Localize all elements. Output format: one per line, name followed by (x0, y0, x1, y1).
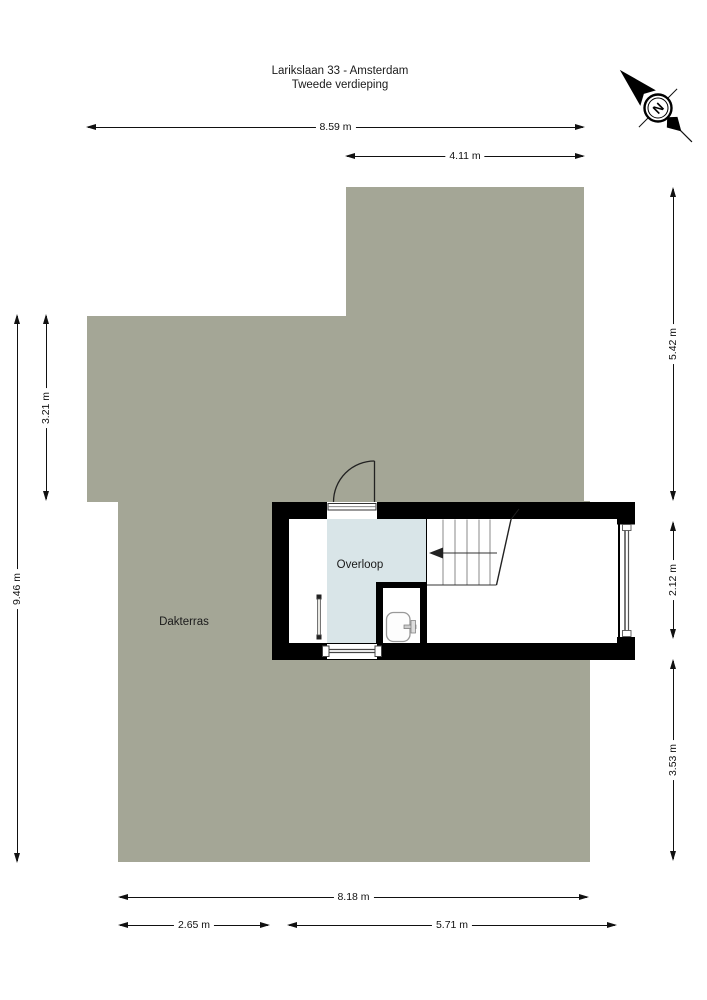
compass-north-label: N (650, 100, 667, 117)
bottom-window-opening (327, 644, 377, 659)
landing-room-leg (327, 582, 376, 643)
plan-title-floor: Tweede verdieping (0, 78, 680, 92)
plan-title-address: Larikslaan 33 - Amsterdam (0, 64, 680, 78)
toilet-room (383, 588, 420, 643)
stair-room (427, 519, 618, 643)
left-closet-area (289, 519, 327, 643)
right-window-opening (620, 524, 635, 637)
landing-room-main (327, 519, 426, 582)
terrace-label: Dakterras (134, 616, 234, 628)
landing-label: Overloop (310, 559, 410, 571)
terrace-door-opening (327, 502, 377, 519)
floor-plan: Larikslaan 33 - Amsterdam Tweede verdiep… (0, 0, 707, 1000)
plan-title: Larikslaan 33 - Amsterdam Tweede verdiep… (0, 64, 680, 92)
roof-terrace-upper (346, 187, 584, 316)
roof-terrace-mid (87, 316, 584, 502)
